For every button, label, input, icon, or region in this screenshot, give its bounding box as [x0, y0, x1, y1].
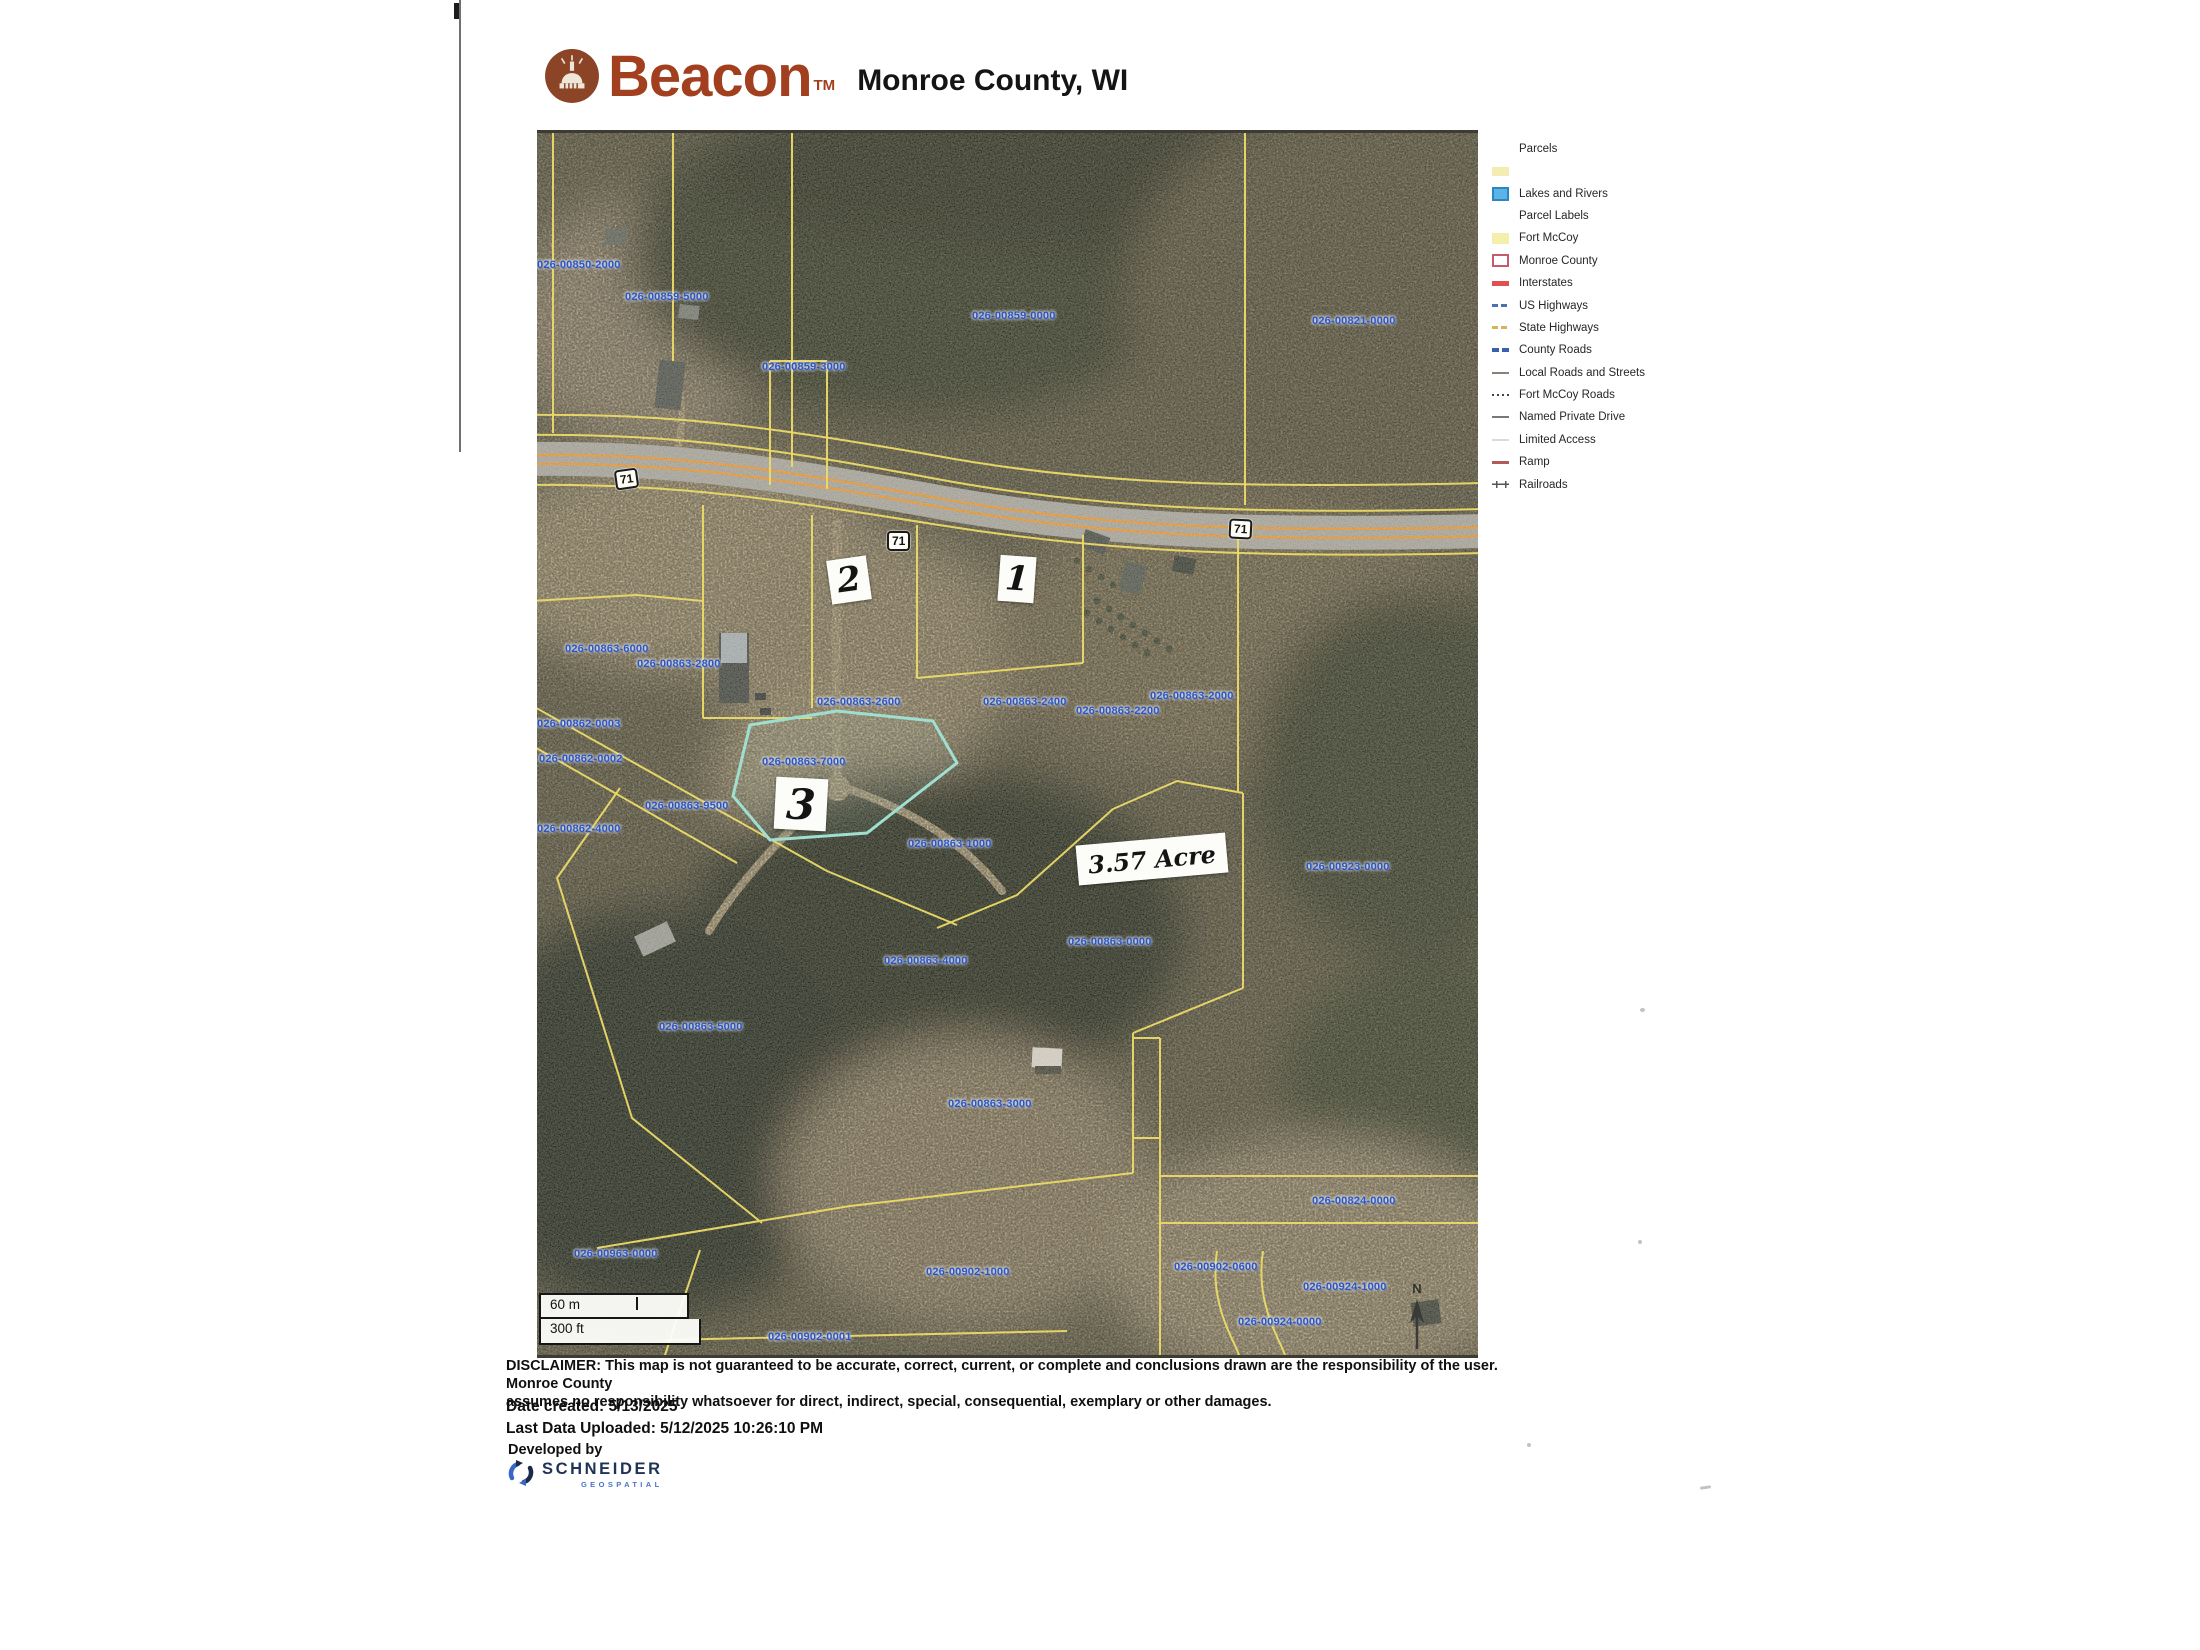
aerial-parcel-map: 026-00850-2000026-00859-5000026-00859-30…: [537, 130, 1478, 1358]
parcel-id-label: 026-00850-2000: [537, 259, 621, 271]
scan-speck: [1640, 1008, 1645, 1012]
parcel-id-label: 026-00859-5000: [625, 291, 709, 303]
parcel-id-label: 026-00863-0000: [1068, 936, 1152, 948]
parcels-swatch-icon: [1492, 167, 1509, 176]
scan-artifact-mark: [454, 3, 459, 19]
legend-swatch-icon: [1492, 281, 1509, 286]
north-arrow: N: [1405, 1283, 1429, 1353]
legend-swatch-icon: [1492, 416, 1509, 418]
developed-by-label: Developed by: [508, 1442, 602, 1458]
legend-item: Railroads: [1492, 473, 1692, 495]
legend-item: Limited Access: [1492, 429, 1692, 451]
parcel-id-label: 026-00924-1000: [1303, 1281, 1387, 1293]
legend-item: Named Private Drive: [1492, 406, 1692, 428]
page-title: Monroe County, WI: [857, 64, 1128, 98]
highway-71-shield: 71: [887, 531, 910, 551]
parcel-id-label: 026-00863-2200: [1076, 705, 1160, 717]
brand-wordmark: BeaconTM: [608, 48, 835, 106]
parcel-id-label: 026-00863-2000: [1150, 690, 1234, 702]
beacon-logo-icon: [544, 48, 600, 104]
legend-item: Parcel Labels: [1492, 205, 1692, 227]
parcel-id-label: 026-00902-0001: [768, 1331, 852, 1343]
north-arrow-icon: [1405, 1295, 1429, 1353]
scale-metric: 60 m: [539, 1293, 689, 1319]
parcel-id-label: 026-00863-9500: [645, 800, 729, 812]
highway-71-shield: 71: [1228, 518, 1252, 539]
legend-item: Lakes and Rivers: [1492, 182, 1692, 204]
legend-item: Ramp: [1492, 451, 1692, 473]
parcel-id-label: 026-00859-3000: [762, 361, 846, 373]
scanned-map-page: BeaconTM Monroe County, WI: [0, 0, 2200, 1650]
legend-item: County Roads: [1492, 339, 1692, 361]
parcel-id-label: 026-00902-1000: [926, 1266, 1010, 1278]
parcel-id-label: 026-00863-3000: [948, 1098, 1032, 1110]
legend-swatch-icon: [1492, 304, 1509, 307]
schneider-wordmark: SCHNEIDER GEOSPATIAL: [542, 1461, 663, 1489]
parcel-id-label: 026-00863-4000: [884, 955, 968, 967]
parcel-id-label: 026-00863-2600: [817, 696, 901, 708]
legend-swatch-icon: [1492, 187, 1509, 201]
legend-parcels-swatch-row: [1492, 160, 1692, 182]
parcel-id-label: 026-00859-0000: [972, 310, 1056, 322]
last-data-uploaded: Last Data Uploaded: 5/12/2025 10:26:10 P…: [506, 1420, 823, 1438]
legend-swatch-icon: [1492, 326, 1509, 329]
disclaimer-line1: DISCLAIMER: This map is not guaranteed t…: [506, 1357, 1506, 1393]
brand-trademark: TM: [814, 77, 836, 94]
parcel-id-label: 026-00863-2800: [637, 658, 721, 670]
handwritten-annotation: 1: [997, 555, 1036, 603]
parcel-id-label: 026-00862-4000: [537, 823, 621, 835]
legend-title: Parcels: [1492, 138, 1692, 160]
schneider-logo: SCHNEIDER GEOSPATIAL: [506, 1458, 663, 1489]
legend-item: Fort McCoy Roads: [1492, 384, 1692, 406]
parcel-id-label: 026-00902-0600: [1174, 1261, 1258, 1273]
handwritten-annotation: 3: [774, 777, 829, 832]
legend-swatch-icon: [1492, 215, 1509, 217]
parcel-id-label: 026-00862-0002: [539, 753, 623, 765]
north-label: N: [1412, 1283, 1421, 1295]
date-created: Date created: 5/13/2025: [506, 1398, 677, 1416]
scan-speck: [1527, 1443, 1531, 1447]
legend-swatch-icon: [1492, 461, 1509, 464]
scale-imperial: 300 ft: [539, 1319, 701, 1345]
parcel-id-label: 026-00863-6000: [565, 643, 649, 655]
scale-tick: [636, 1297, 638, 1310]
schneider-geospatial: GEOSPATIAL: [542, 1480, 663, 1489]
legend-swatch-icon: [1492, 348, 1509, 352]
map-legend: Parcels Lakes and Rivers Parcel Labels F…: [1492, 138, 1692, 496]
legend-item: Fort McCoy: [1492, 227, 1692, 249]
parcel-id-label: 026-00862-0003: [537, 718, 621, 730]
legend-item: Local Roads and Streets: [1492, 362, 1692, 384]
parcel-id-label: 026-00863-1000: [908, 838, 992, 850]
legend-item: Interstates: [1492, 272, 1692, 294]
legend-item: US Highways: [1492, 294, 1692, 316]
scan-speck: [1638, 1240, 1642, 1244]
legend-item: State Highways: [1492, 317, 1692, 339]
scale-bar: 60 m 300 ft: [539, 1293, 701, 1345]
legend-swatch-icon: [1492, 254, 1509, 267]
legend-swatch-icon: [1492, 372, 1509, 374]
brand-name: Beacon: [608, 44, 812, 109]
parcel-id-label: 026-00963-0000: [574, 1248, 658, 1260]
parcel-id-label: 026-00863-5000: [659, 1021, 743, 1033]
parcel-id-label: 026-00923-0000: [1306, 861, 1390, 873]
legend-swatch-icon: [1492, 439, 1509, 441]
legend-swatch-icon: [1492, 394, 1509, 396]
highway-71-shield: 71: [614, 467, 640, 490]
legend-item: Monroe County: [1492, 250, 1692, 272]
parcel-id-label: 026-00863-7000: [762, 756, 846, 768]
page-header: BeaconTM Monroe County, WI: [544, 48, 1128, 106]
scan-artifact-line: [459, 0, 461, 452]
schneider-brand: SCHNEIDER: [542, 1461, 663, 1478]
handwritten-annotation: 2: [826, 555, 872, 604]
parcel-id-label: 026-00821-0000: [1312, 315, 1396, 327]
schneider-logo-icon: [506, 1458, 536, 1488]
legend-swatch-icon: [1492, 481, 1509, 488]
parcel-id-label: 026-00824-0000: [1312, 1195, 1396, 1207]
parcel-id-label: 026-00863-2400: [983, 696, 1067, 708]
legend-swatch-icon: [1492, 233, 1509, 244]
parcel-id-label: 026-00924-0000: [1238, 1316, 1322, 1328]
scan-speck: [1700, 1485, 1711, 1490]
